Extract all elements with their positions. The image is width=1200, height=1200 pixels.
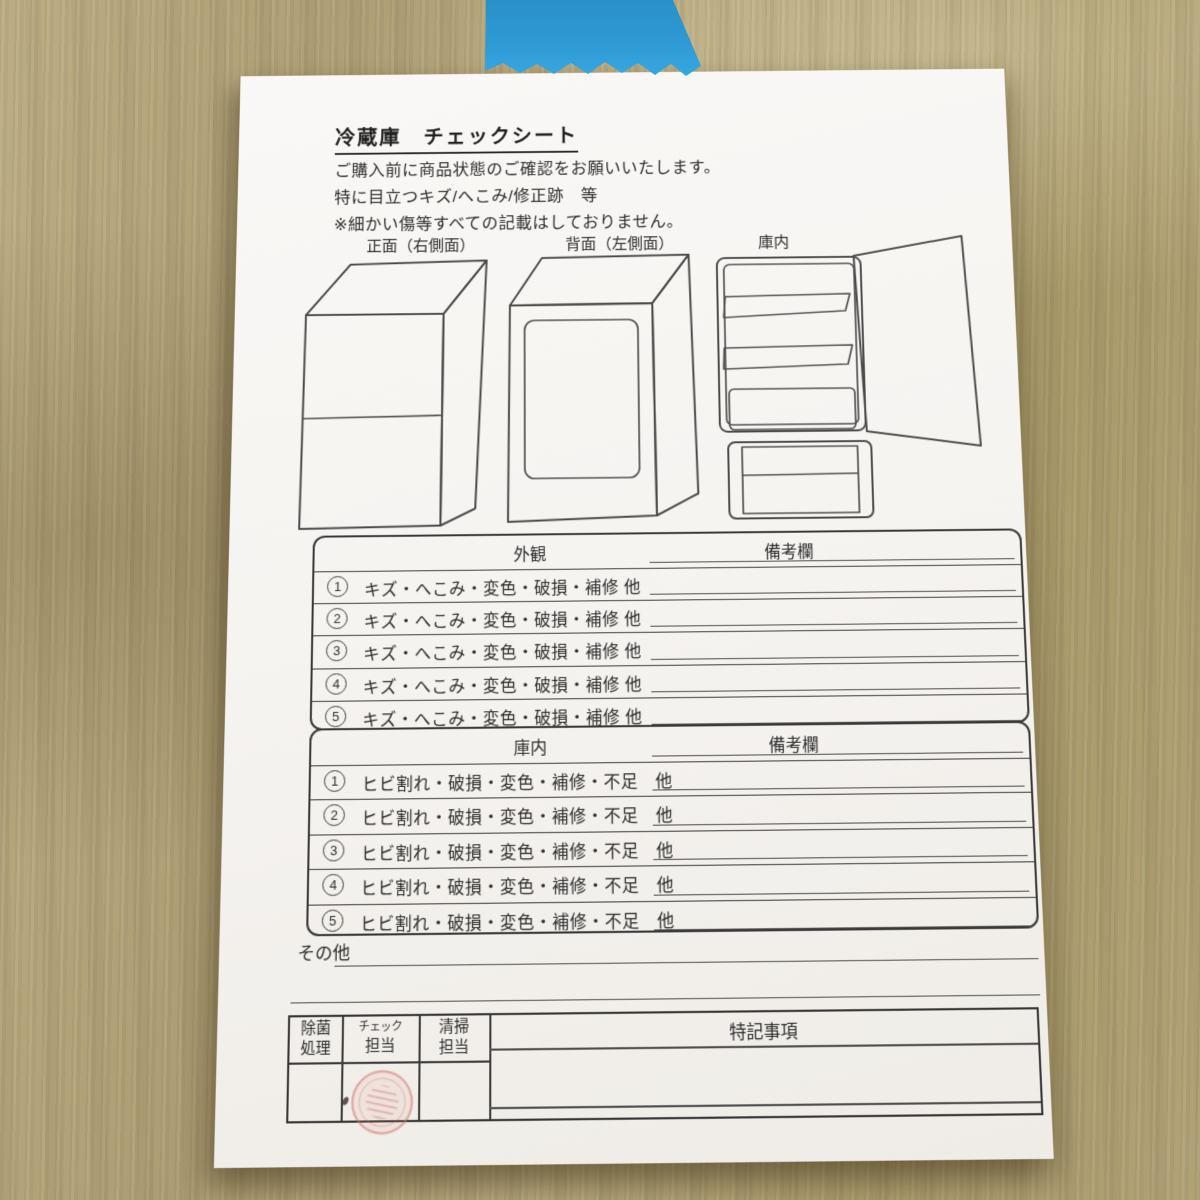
interior-header-label: 庫内 bbox=[429, 733, 632, 760]
front-view-label: 正面（右側面） bbox=[351, 232, 491, 256]
check-line-2: 担当 bbox=[341, 1036, 418, 1057]
remarks-ruled-line bbox=[650, 590, 1016, 595]
cleaning-line-1: 清掃 bbox=[419, 1017, 490, 1038]
circled-number: 3 bbox=[323, 839, 345, 861]
notes-ruled-line bbox=[489, 1101, 1041, 1109]
check-sheet-paper: 冷蔵庫 チェックシート ご購入前に商品状態のご確認をお願いいたします。 特に目立… bbox=[214, 69, 1054, 1168]
circled-number: 4 bbox=[322, 874, 344, 896]
interior-condition-table: 庫内 備考欄 1 ヒビ割れ・破損・変色・補修・不足 他 2 ヒビ割れ・破損・変色… bbox=[306, 721, 1039, 936]
notes-header: 特記事項 bbox=[489, 1015, 1038, 1047]
cleaning-header: 清掃 担当 bbox=[418, 1017, 489, 1059]
photo-scene: { "scene": { "wood_color": "#b0a176", "p… bbox=[0, 0, 1200, 1200]
fridge-front-diagram bbox=[294, 255, 493, 536]
remarks-ruled-line bbox=[651, 655, 1019, 660]
sanitize-line-2: 処理 bbox=[289, 1039, 341, 1060]
page-title: 冷蔵庫 チェックシート bbox=[335, 120, 578, 155]
circled-number: 2 bbox=[323, 805, 345, 827]
check-header: チェック 担当 bbox=[341, 1018, 418, 1058]
fridge-interior-diagram bbox=[711, 233, 995, 529]
intro-line-1: ご購入前に商品状態のご確認をお願いいたします。 bbox=[334, 154, 720, 185]
fridge-back-diagram bbox=[500, 249, 704, 525]
row-text: キズ・へこみ・変色・破損・補修 他 bbox=[363, 606, 641, 633]
check-line-1: チェック bbox=[342, 1018, 419, 1037]
other-ruled-line bbox=[290, 994, 1040, 1003]
cleaning-line-2: 担当 bbox=[418, 1038, 489, 1059]
remarks-ruled-line bbox=[654, 890, 1030, 895]
circled-number: 5 bbox=[325, 705, 347, 727]
other-ruled-line bbox=[334, 958, 1038, 967]
row-text: ヒビ割れ・破損・変色・補修・不足 他 bbox=[361, 768, 672, 796]
footer-signoff-table: 除菌 処理 チェック 担当 清掃 担当 特記事項 bbox=[286, 1007, 1043, 1123]
exterior-header-label: 外観 bbox=[430, 540, 630, 566]
row-text: ヒビ割れ・破損・変色・補修・不足 他 bbox=[361, 802, 673, 830]
intro-line-2: 特に目立つキズ/へこみ/修正跡 等 bbox=[334, 181, 721, 212]
circled-number: 5 bbox=[322, 909, 344, 931]
exterior-condition-table: 外観 備考欄 1 キズ・へこみ・変色・破損・補修 他 2 キズ・へこみ・変色・破… bbox=[310, 528, 1030, 730]
row-text: ヒビ割れ・破損・変色・補修・不足 他 bbox=[360, 872, 674, 901]
remarks-ruled-line bbox=[653, 855, 1027, 860]
circled-number: 3 bbox=[326, 640, 347, 661]
circled-number: 1 bbox=[324, 770, 346, 792]
row-text: キズ・へこみ・変色・破損・補修 他 bbox=[363, 638, 642, 665]
remarks-ruled-line bbox=[653, 820, 1026, 825]
circled-number: 2 bbox=[326, 608, 347, 629]
row-text: キズ・へこみ・変色・破損・補修 他 bbox=[363, 671, 643, 698]
row-text: ヒビ割れ・破損・変色・補修・不足 他 bbox=[361, 837, 674, 865]
row-text: ヒビ割れ・破損・変色・補修・不足 他 bbox=[360, 907, 675, 936]
circled-number: 1 bbox=[327, 576, 348, 597]
remarks-ruled-line bbox=[651, 687, 1020, 692]
sanitize-header: 除菌 処理 bbox=[289, 1019, 342, 1060]
remarks-ruled-line bbox=[654, 925, 1031, 930]
other-section-label: その他 bbox=[297, 938, 350, 965]
remarks-ruled-line bbox=[652, 786, 1024, 791]
circled-number: 4 bbox=[325, 673, 346, 694]
red-hanko-stamp bbox=[345, 1065, 419, 1141]
row-text: キズ・へこみ・変色・破損・補修 他 bbox=[364, 574, 641, 601]
row-divider bbox=[289, 1060, 490, 1064]
table-row: 5 ヒビ割れ・破損・変色・補修・不足 他 bbox=[308, 897, 1037, 939]
intro-text: ご購入前に商品状態のご確認をお願いいたします。 特に目立つキズ/へこみ/修正跡 … bbox=[334, 154, 722, 239]
remarks-ruled-line bbox=[650, 622, 1017, 627]
sanitize-line-1: 除菌 bbox=[290, 1019, 342, 1040]
